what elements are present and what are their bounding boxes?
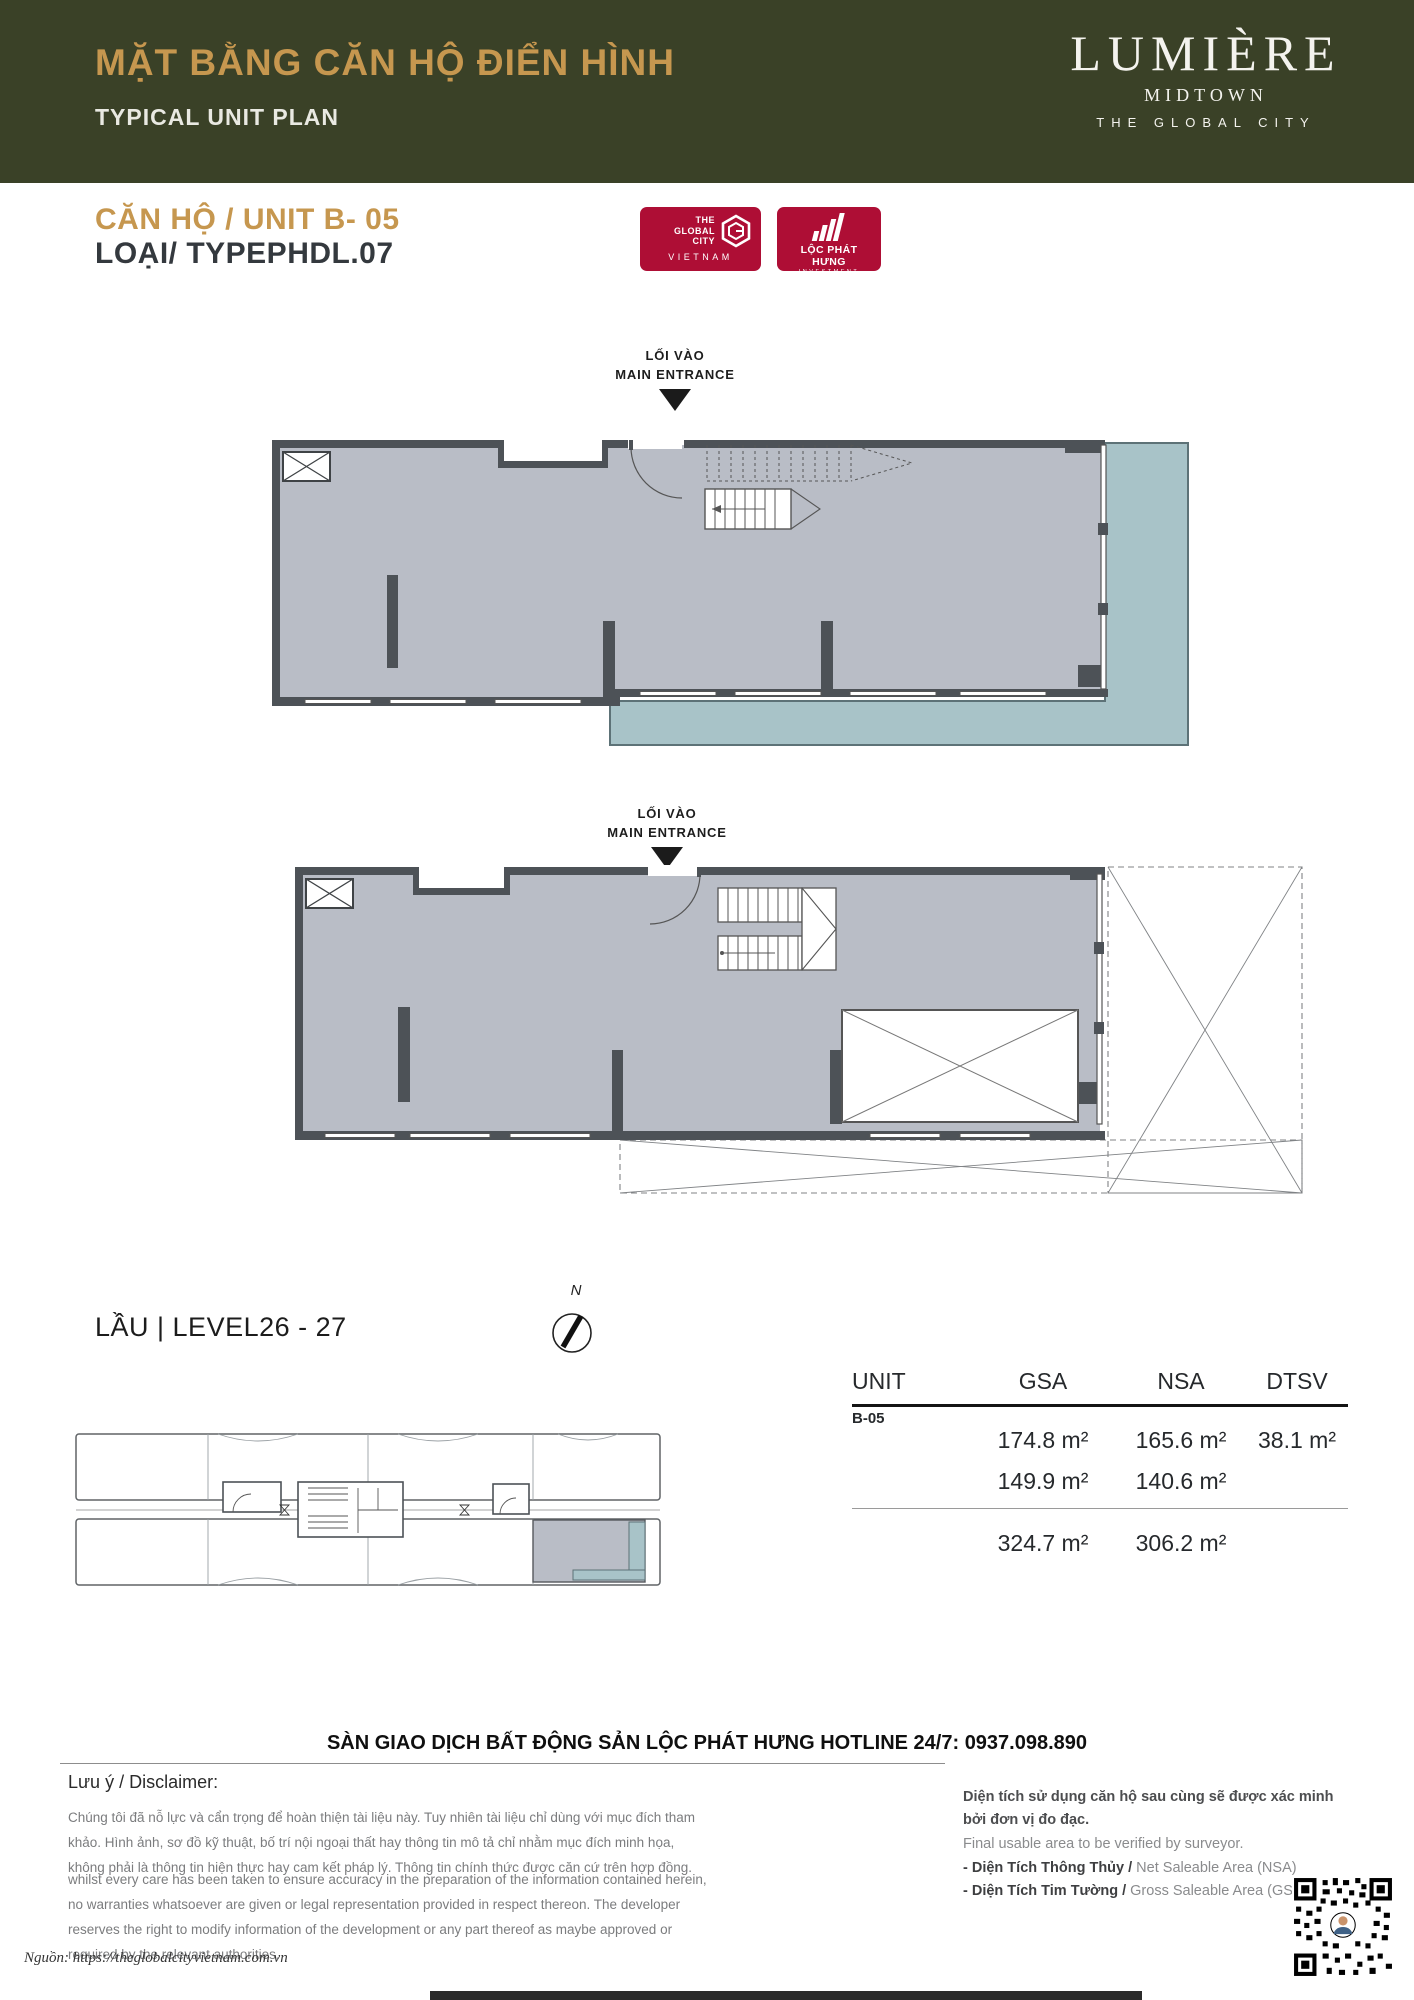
- gc-line1: THE: [674, 215, 715, 225]
- header-band: MẶT BẰNG CĂN HỘ ĐIỂN HÌNH TYPICAL UNIT P…: [0, 0, 1414, 183]
- nsa-def-en: Net Saleable Area (NSA): [1132, 1860, 1296, 1876]
- page-title-vi: MẶT BẰNG CĂN HỘ ĐIỂN HÌNH: [95, 42, 675, 84]
- stairs-icon: [718, 888, 836, 970]
- col-dtsv: DTSV: [1246, 1368, 1348, 1395]
- global-city-logo-top: THE GLOBAL CITY: [649, 214, 752, 248]
- floor-plan-level-27: [270, 852, 1330, 1207]
- entrance-label-1: LỐI VÀO MAIN ENTRANCE: [590, 347, 760, 411]
- gsa-value: 174.8 m²: [970, 1427, 1116, 1454]
- lph-subtitle: INVESTMENT: [785, 269, 873, 275]
- unit-type-heading: LOẠI/ TYPEPHDL.07: [95, 237, 394, 271]
- lph-sub-text: INVESTMENT: [799, 269, 859, 275]
- global-city-logo-words: THE GLOBAL CITY: [674, 215, 715, 246]
- entrance-label-vi: LỐI VÀO: [590, 347, 760, 366]
- gc-country: VIETNAM: [649, 252, 752, 262]
- brand-name: LUMIÈRE: [1048, 26, 1364, 81]
- table-divider: [852, 1508, 1348, 1509]
- col-nsa: NSA: [1116, 1368, 1246, 1395]
- gc-line2: GLOBAL: [674, 226, 715, 236]
- void-over-living: [842, 1010, 1078, 1122]
- dtsv-value: [1246, 1530, 1348, 1557]
- area-table-header: UNIT GSA NSA DTSV: [852, 1368, 1348, 1407]
- entrance-arrow-icon: [659, 389, 691, 411]
- table-row: 149.9 m² 140.6 m²: [852, 1468, 1348, 1495]
- entrance-label-vi: LỐI VÀO: [582, 805, 752, 824]
- divider-line: [60, 1763, 945, 1764]
- unit-heading: CĂN HỘ / UNIT B- 05: [95, 203, 400, 237]
- gsa-value: 324.7 m²: [970, 1530, 1116, 1557]
- lh-monogram-icon: [785, 212, 873, 242]
- entrance-label-en: MAIN ENTRANCE: [582, 824, 752, 843]
- compass-north-label: N: [571, 1282, 582, 1299]
- compass-icon: N: [549, 1280, 595, 1360]
- area-note-vi: Diện tích sử dụng căn hộ sau cùng sẽ đượ…: [963, 1786, 1359, 1832]
- gsa-def-vi: - Diện Tích Tim Tường /: [963, 1883, 1126, 1899]
- global-city-logo: THE GLOBAL CITY VIETNAM: [640, 207, 761, 271]
- qr-avatar: [1331, 1913, 1355, 1937]
- gc-line3: CITY: [674, 236, 715, 246]
- brochure-page: MẶT BẰNG CĂN HỘ ĐIỂN HÌNH TYPICAL UNIT P…: [0, 0, 1414, 2000]
- qr-code: [1292, 1876, 1394, 1978]
- hotline-banner: SÀN GIAO DỊCH BẤT ĐỘNG SẢN LỘC PHÁT HƯNG…: [0, 1732, 1414, 1755]
- floor-plan-level-26: [260, 425, 1200, 755]
- dtsv-value: 38.1 m²: [1246, 1427, 1348, 1454]
- area-table: UNIT GSA NSA DTSV B-05 174.8 m² 165.6 m²…: [852, 1368, 1348, 1557]
- table-row: 324.7 m² 306.2 m²: [852, 1530, 1348, 1557]
- nsa-value: 140.6 m²: [1116, 1468, 1246, 1495]
- hexagon-g-icon: [720, 214, 752, 248]
- entrance-label-en: MAIN ENTRANCE: [590, 366, 760, 385]
- brand-tagline: THE GLOBAL CITY: [1048, 115, 1364, 130]
- level-label: LẦU | LEVEL26 - 27: [95, 1312, 347, 1343]
- nsa-def-vi: - Diện Tích Thông Thủy /: [963, 1860, 1132, 1876]
- col-gsa: GSA: [970, 1368, 1116, 1395]
- area-note-en: Final usable area to be verified by surv…: [963, 1833, 1359, 1856]
- shaft-icon: [283, 452, 330, 481]
- dtsv-value: [1246, 1468, 1348, 1495]
- gsa-value: 149.9 m²: [970, 1468, 1116, 1495]
- unit-id: B-05: [852, 1410, 1348, 1427]
- lumiere-brand-logo: LUMIÈRE MIDTOWN THE GLOBAL CITY: [1048, 26, 1364, 130]
- gsa-def-en: Gross Saleable Area (GSA): [1126, 1883, 1307, 1899]
- disclaimer-heading: Lưu ý / Disclaimer:: [68, 1772, 218, 1793]
- key-plan: [68, 1422, 668, 1597]
- shaft-icon: [306, 879, 353, 908]
- source-url: Nguồn: https://theglobalcityvietnam.com.…: [24, 1950, 288, 1967]
- page-title-en: TYPICAL UNIT PLAN: [95, 104, 339, 131]
- col-unit: UNIT: [852, 1368, 970, 1395]
- nsa-value: 165.6 m²: [1116, 1427, 1246, 1454]
- brand-subname: MIDTOWN: [1048, 85, 1364, 106]
- lph-name: LỘC PHÁT HƯNG: [785, 244, 873, 268]
- nsa-value: 306.2 m²: [1116, 1530, 1246, 1557]
- loc-phat-hung-logo: LỘC PHÁT HƯNG INVESTMENT: [777, 207, 881, 271]
- table-row: 174.8 m² 165.6 m² 38.1 m²: [852, 1427, 1348, 1454]
- bottom-bar: [430, 1991, 1142, 2000]
